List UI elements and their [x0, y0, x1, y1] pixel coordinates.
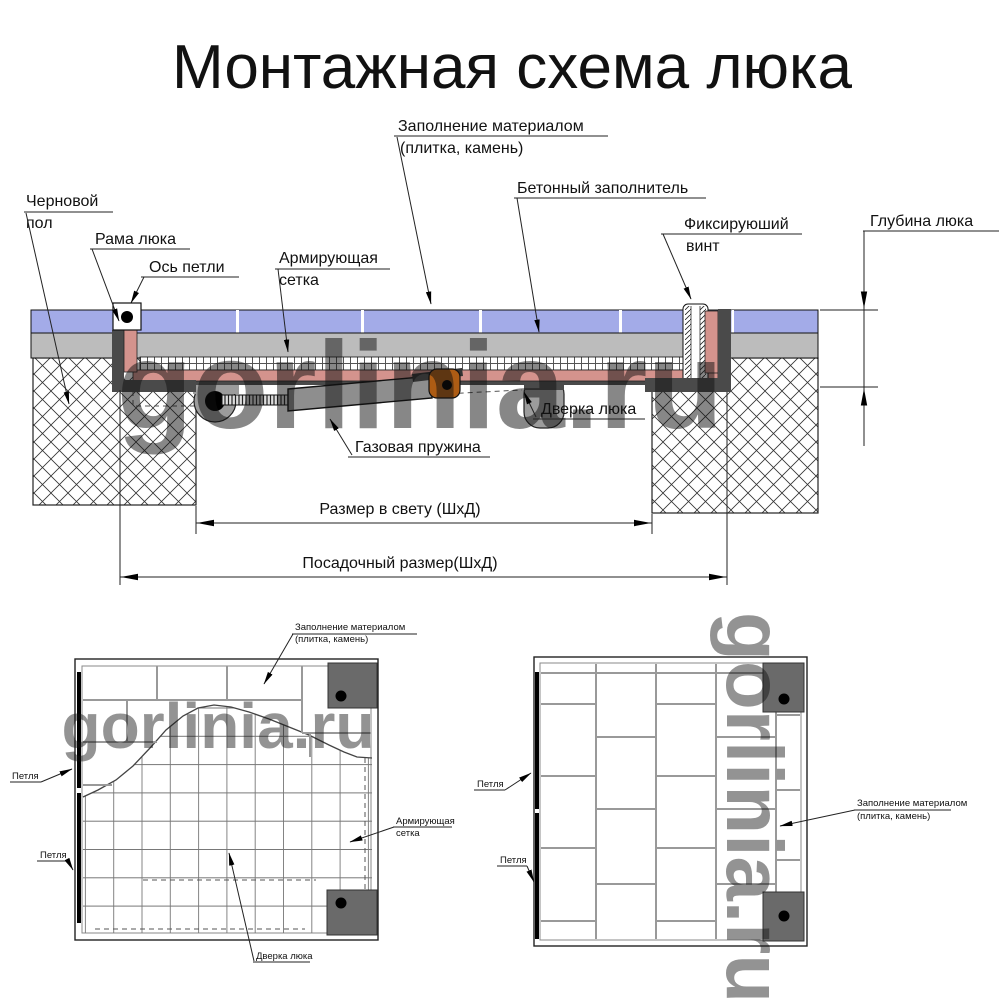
plan-right-hinge-bar-bottom: [535, 813, 539, 939]
hatch-door-label: Дверка люка: [541, 401, 636, 418]
fill-material-label: Заполнение материалом: [398, 118, 584, 135]
watermark-plan-left: gorlinia.ru: [62, 690, 375, 762]
diagram-canvas: Монтажная схема люка: [0, 0, 1000, 1000]
watermark-plan-right: gorlinia.ru: [710, 612, 799, 1000]
dimension-depth: Глубина люка: [820, 213, 999, 446]
hatch-frame-label: Рама люка: [95, 231, 176, 248]
plan-left-fill-label2: (плитка, камень): [295, 634, 368, 645]
plan-right-hinge-label1: Петля: [477, 779, 504, 790]
rough-floor-label: Черновой: [26, 193, 98, 210]
fill-material-label2: (плитка, камень): [400, 140, 523, 157]
fixing-screw-label2: винт: [686, 238, 720, 255]
plan-left-corner-pin-bottom: [336, 898, 347, 909]
hinge-axis-label: Ось петли: [149, 259, 225, 276]
plan-left-hinge-label1: Петля: [12, 771, 39, 782]
watermark-section: gorlinia.ru: [117, 317, 723, 455]
fixing-screw-label: Фиксируюший: [684, 216, 789, 233]
mesh-label: Армирующая: [279, 250, 378, 267]
dimension-clear-size: Размер в свету (ШхД): [196, 501, 652, 534]
plan-left-hinge-label2: Петля: [40, 850, 67, 861]
plan-left-hinge-bar-bottom: [77, 793, 81, 923]
plan-left-mesh-label: Армирующая: [396, 816, 455, 827]
depth-label: Глубина люка: [870, 213, 973, 230]
plan-left-door-label: Дверка люка: [256, 951, 313, 962]
page-title: Монтажная схема люка: [172, 33, 853, 102]
plan-right-hinge-bar-top: [535, 672, 539, 809]
plan-left-fill-label: Заполнение материалом: [295, 622, 405, 633]
plan-left-corner-mount-bottom: [327, 890, 377, 935]
concrete-filler-label: Бетонный заполнитель: [517, 180, 688, 197]
plan-right-fill-label: Заполнение материалом: [857, 798, 967, 809]
plan-left-mesh-label2: сетка: [396, 828, 420, 839]
mesh-label2: сетка: [279, 272, 319, 289]
clear-size-label: Размер в свету (ШхД): [319, 501, 480, 518]
installation-diagram-page: Монтажная схема люка: [0, 0, 1000, 1000]
gas-spring-label: Газовая пружина: [355, 439, 481, 456]
plan-right-hinge-label2: Петля: [500, 855, 527, 866]
mounting-size-label: Посадочный размер(ШхД): [302, 555, 497, 572]
plan-right-fill-label2: (плитка, камень): [857, 811, 930, 822]
